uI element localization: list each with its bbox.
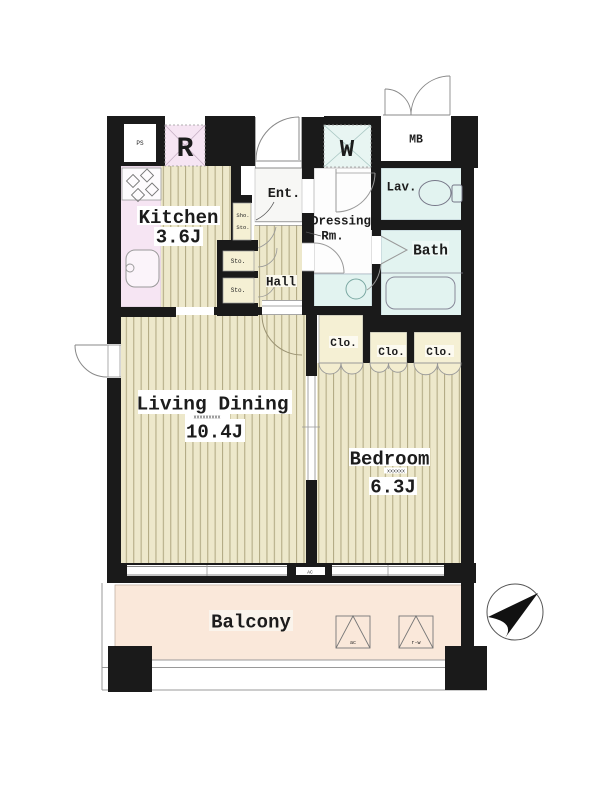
svg-text:R: R [177, 134, 194, 165]
svg-text:AC: AC [307, 570, 313, 576]
svg-text:6.3J: 6.3J [370, 477, 416, 499]
svg-text:Sto.: Sto. [231, 287, 245, 294]
svg-text:PS: PS [136, 140, 144, 147]
svg-text:Living Dining: Living Dining [136, 394, 288, 416]
svg-text:Clo.: Clo. [378, 347, 404, 359]
svg-text:Balcony: Balcony [211, 612, 291, 634]
svg-text:ac: ac [350, 640, 356, 646]
svg-text:Bath: Bath [413, 244, 448, 260]
svg-text:Dressing: Dressing [311, 215, 371, 229]
svg-text:Clo.: Clo. [330, 338, 356, 350]
svg-text:Sto.: Sto. [236, 224, 249, 231]
svg-text:3.6J: 3.6J [156, 227, 202, 249]
svg-text:10.4J: 10.4J [186, 422, 243, 444]
svg-text:xxxxxx: xxxxxx [387, 469, 405, 475]
svg-text:Bedroom: Bedroom [350, 449, 430, 471]
svg-text:Clo.: Clo. [426, 347, 452, 359]
svg-text:Lav.: Lav. [386, 181, 416, 195]
svg-text:Rm.: Rm. [321, 230, 344, 244]
svg-text:Ent.: Ent. [268, 187, 300, 202]
svg-text:W: W [340, 137, 355, 164]
svg-text:r-w: r-w [411, 640, 420, 646]
svg-text:Sto.: Sto. [231, 258, 245, 265]
svg-text:Hall: Hall [266, 276, 296, 290]
svg-text:MB: MB [409, 134, 423, 147]
svg-text:Sho.: Sho. [236, 212, 249, 219]
